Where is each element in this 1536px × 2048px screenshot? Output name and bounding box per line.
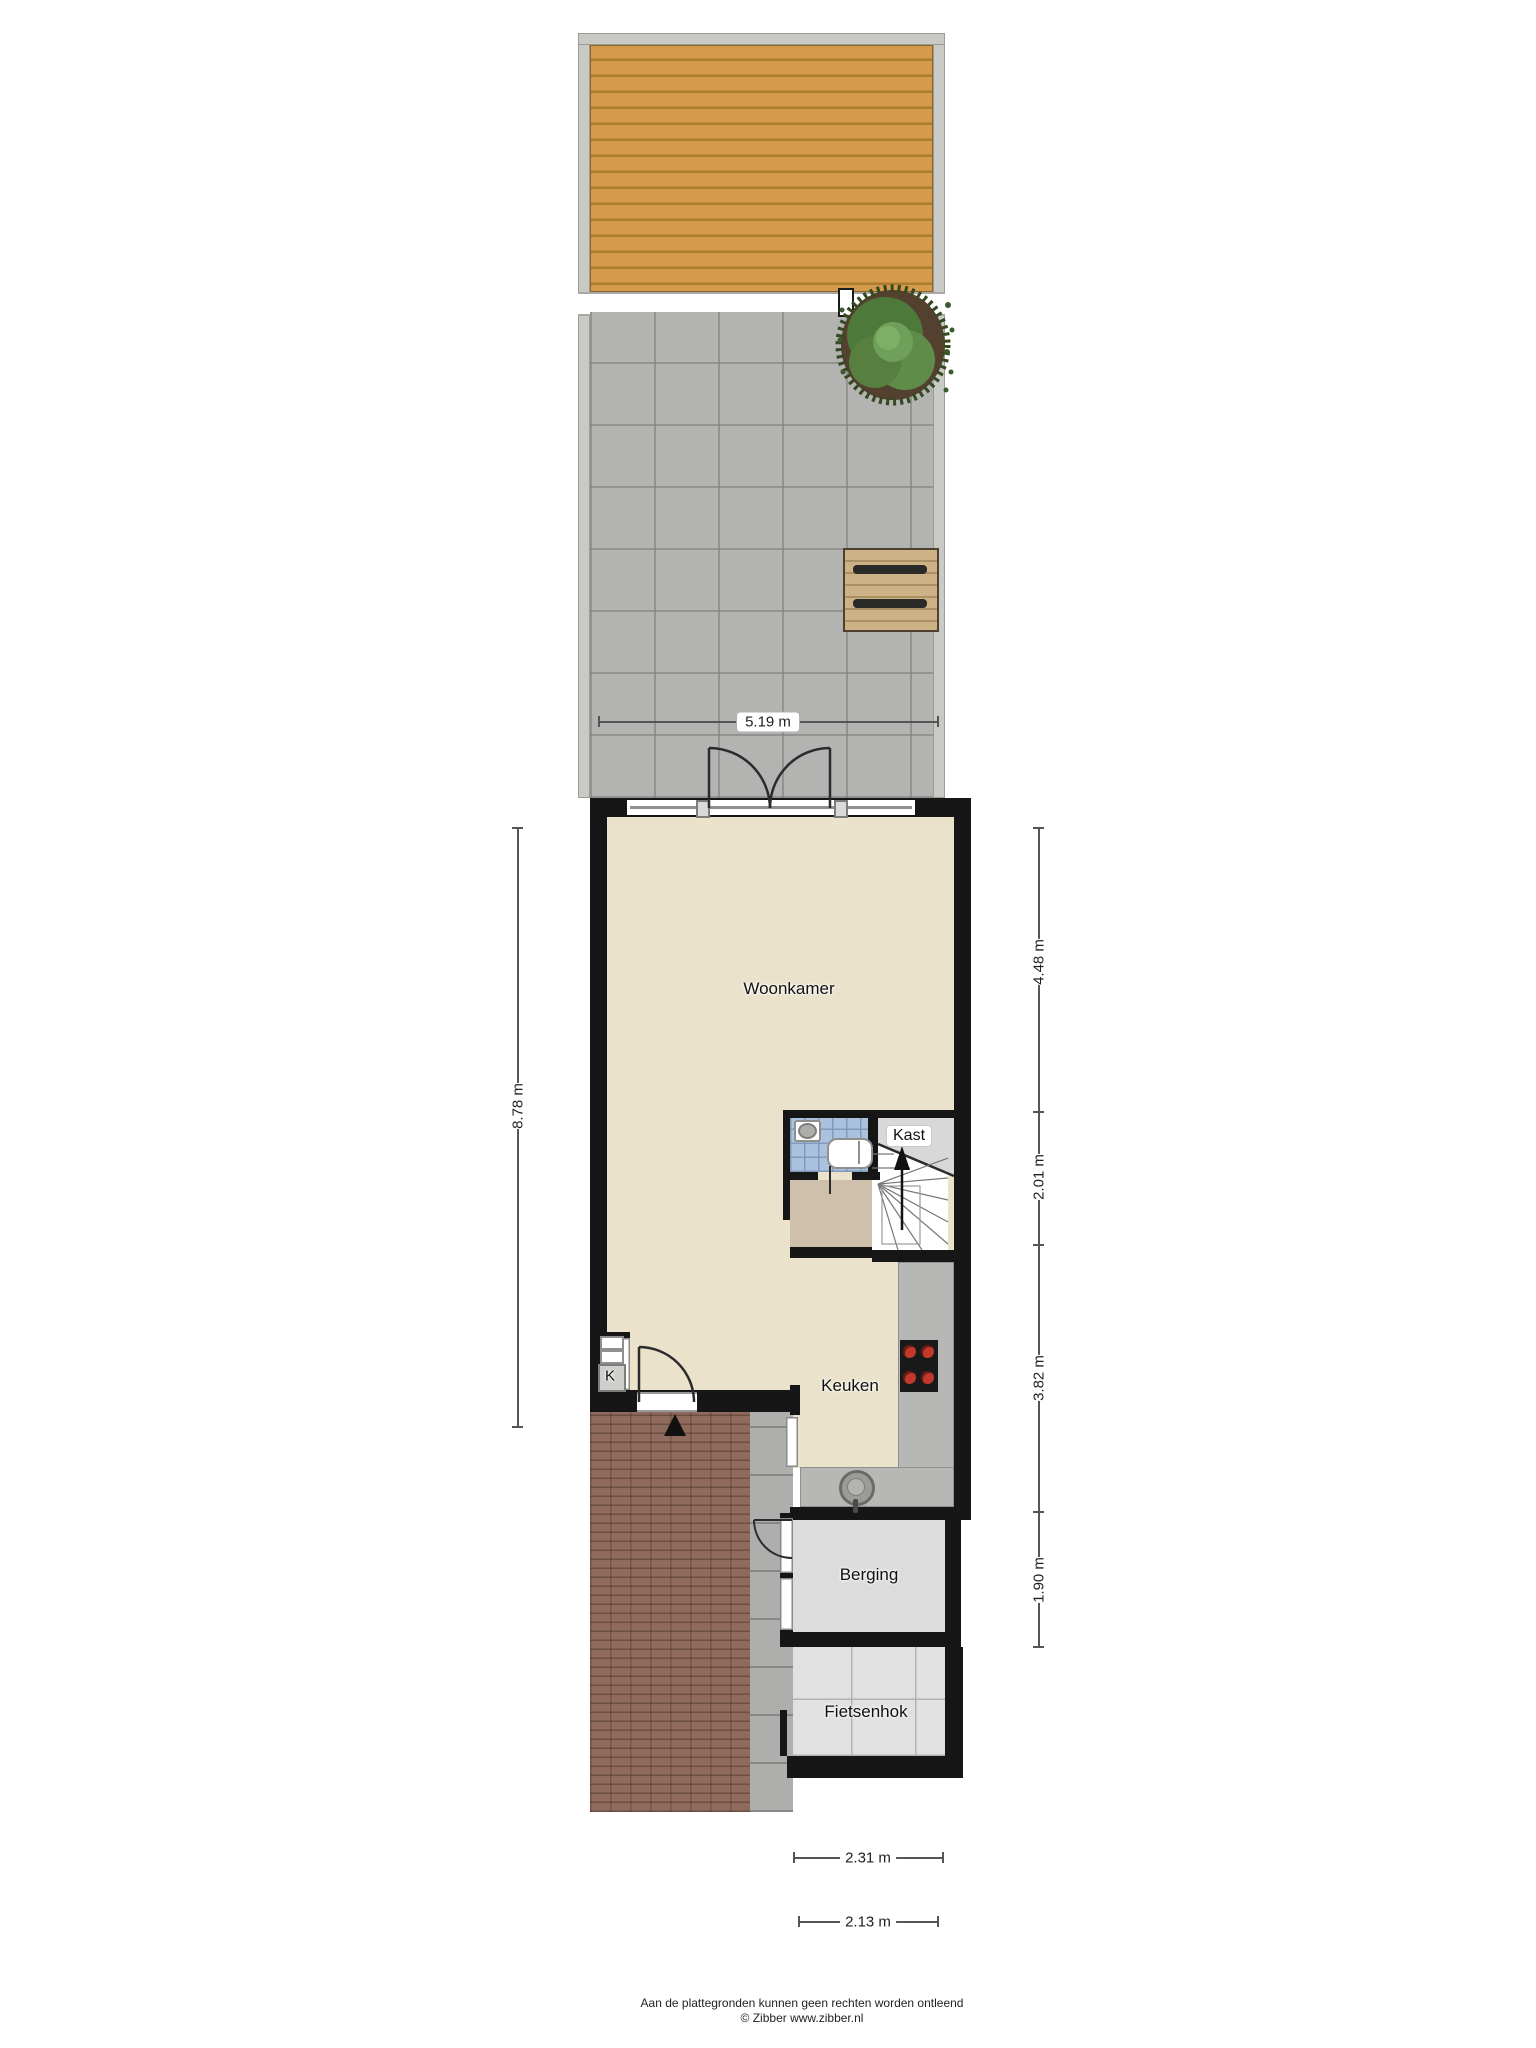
kitchen-counter-bottom [800, 1467, 954, 1507]
dim-label-berging-width: 2.31 m [840, 1850, 896, 1867]
wall-berging-bottom [793, 1632, 945, 1647]
kitchen-side-window [786, 1417, 798, 1467]
wall-fietsenhok-left [780, 1710, 787, 1756]
kitchen-sink-basin [847, 1478, 865, 1496]
wall-stairs-bottom [872, 1250, 954, 1262]
dim-label-house-depth: 8.78 m [505, 1083, 532, 1129]
wall-kitchen-bottom [790, 1507, 971, 1520]
picnic-table-bench-slot [853, 565, 927, 574]
entrance-arrow-icon [664, 1414, 686, 1436]
wall-right [954, 817, 971, 1512]
room-label-meterkast: K [605, 1368, 615, 1385]
footer-line-2: © Zibber www.zibber.nl [641, 2011, 964, 2026]
footer-line-1: Aan de plattegronden kunnen geen rechten… [641, 1996, 964, 2011]
meterkast-fixture [600, 1336, 624, 1350]
planter-edge-box [838, 288, 854, 317]
garden-border-right [933, 33, 945, 798]
slider-divider [696, 800, 710, 818]
garden-border-left [578, 33, 590, 798]
front-door-opening [637, 1392, 697, 1412]
room-label-kast: Kast [887, 1126, 931, 1146]
dim-tick [937, 1916, 939, 1927]
dim-tick [793, 1852, 795, 1863]
wall-kitchen-left [790, 1385, 800, 1415]
picnic-table-bench-slot [853, 599, 927, 608]
meterkast-fixture [600, 1350, 624, 1364]
dim-label-seg3: 3.82 m [1026, 1355, 1053, 1401]
washbasin-bowl [798, 1123, 817, 1139]
wall-hall-left [783, 1180, 790, 1220]
dim-tick [1033, 827, 1044, 829]
picnic-table [843, 548, 939, 632]
patio-slider-rail [630, 806, 912, 809]
dim-label-seg4: 1.90 m [1026, 1557, 1053, 1603]
slider-divider [834, 800, 848, 818]
wall-bathroom-top [783, 1110, 954, 1118]
room-label-berging: Berging [840, 1565, 899, 1585]
dim-tick [512, 827, 523, 829]
dim-tick [512, 1426, 523, 1428]
floor-hallway [790, 1180, 872, 1247]
toilet [827, 1138, 873, 1169]
wall-hall-bottom [790, 1247, 872, 1258]
floorplan-canvas: Woonkamer Kast Keuken Berging Fietsenhok… [0, 0, 1536, 2048]
wall-berging-right [945, 1513, 961, 1647]
dim-tick [1033, 1244, 1044, 1246]
floor-keuken [790, 1258, 898, 1468]
burner-icon [921, 1345, 934, 1358]
wall-bathroom-left [783, 1118, 790, 1180]
burner-icon [921, 1371, 934, 1384]
stove [900, 1340, 938, 1392]
berging-window-frame [780, 1578, 793, 1630]
garden-border-top [578, 33, 945, 45]
room-label-woonkamer: Woonkamer [743, 979, 834, 999]
dim-tick [937, 716, 939, 727]
wood-deck [590, 45, 933, 292]
dim-tick [1033, 1646, 1044, 1648]
wall-bathroom-bottom [783, 1172, 818, 1180]
room-label-fietsenhok: Fietsenhok [824, 1702, 907, 1722]
dim-tick [1033, 1111, 1044, 1113]
faucet-icon [853, 1499, 858, 1513]
dim-label-seg1: 4.48 m [1026, 939, 1053, 985]
footer-disclaimer: Aan de plattegronden kunnen geen rechten… [641, 1996, 964, 2026]
brick-driveway [590, 1412, 750, 1812]
burner-icon [903, 1345, 916, 1358]
toilet-cistern-line [858, 1141, 860, 1164]
dim-tick [1033, 1511, 1044, 1513]
burner-icon [903, 1371, 916, 1384]
dim-label-garden-width: 5.19 m [736, 712, 800, 733]
dim-label-seg2: 2.01 m [1026, 1154, 1053, 1200]
dim-tick [598, 716, 600, 727]
dim-label-fietsenhok-width: 2.13 m [840, 1914, 896, 1931]
dim-tick [798, 1916, 800, 1927]
wall-left [590, 817, 607, 1412]
room-label-keuken: Keuken [821, 1376, 879, 1396]
dim-tick [942, 1852, 944, 1863]
wall-fietsenhok-bottom [787, 1756, 963, 1778]
berging-door-frame [780, 1518, 793, 1573]
